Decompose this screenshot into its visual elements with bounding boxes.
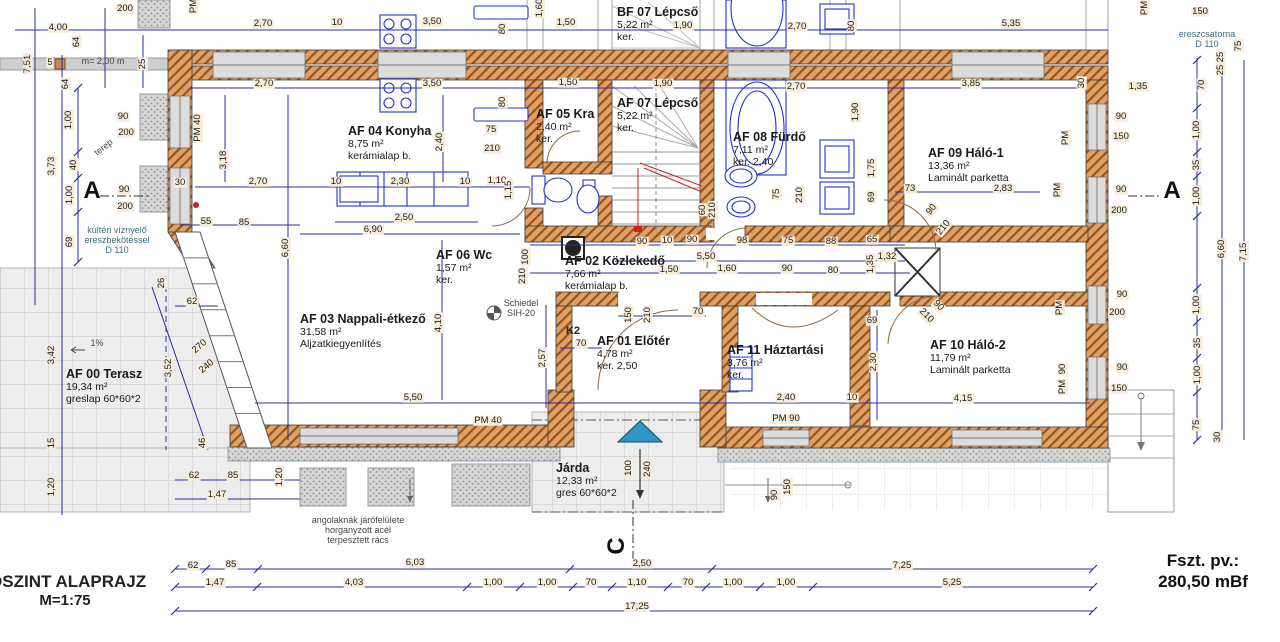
- dimension-label: 6,60: [281, 238, 291, 259]
- room-ar: 4,78 m²: [597, 348, 670, 360]
- dimension-label: 2,50: [394, 213, 415, 223]
- room-nm: BF 07 Lépcső: [617, 5, 698, 19]
- note-label: m= 2,00 m: [82, 57, 125, 67]
- room-label: AF 01 Előtér4,78 m²ker. 2,50: [597, 334, 670, 372]
- room-ar: 7,66 m²: [565, 268, 665, 280]
- dimension-label: 10: [661, 236, 674, 246]
- dimension-label: 1,75: [867, 158, 877, 179]
- dimension-label: 1,50: [558, 78, 579, 88]
- dimension-label: 1,60: [535, 0, 545, 18]
- dimension-label: 98: [736, 236, 749, 246]
- dimension-label: 1,00: [537, 578, 558, 588]
- dimension-label: 70: [692, 307, 705, 317]
- dimension-label: 1,00: [65, 185, 75, 206]
- section-marker: A: [1163, 178, 1180, 204]
- room-label: AF 02 Közlekedő7,66 m²kerámialap b.: [565, 254, 665, 292]
- dimension-label: 2,57: [538, 348, 548, 369]
- room-nm: AF 03 Nappali-étkező: [300, 312, 426, 326]
- room-nm: AF 10 Háló-2: [930, 338, 1011, 352]
- dimension-label: 10: [331, 18, 344, 28]
- dimension-label: 7,25: [892, 561, 913, 571]
- dimension-label: PM: [1058, 379, 1068, 395]
- room-label: Járda12,33 m²gres 60*60*2: [556, 461, 617, 499]
- dimension-label: 210: [518, 267, 528, 285]
- room-fi: kerámialap b.: [565, 280, 665, 292]
- dimension-label: 70: [575, 339, 588, 349]
- note-label: 1%: [90, 339, 103, 349]
- dimension-label: 17,25: [624, 602, 650, 612]
- room-ar: 13,36 m²: [928, 160, 1009, 172]
- dimension-label: 200: [116, 4, 134, 14]
- room-ar: 3,76 m²: [727, 357, 824, 369]
- dimension-label: 90: [686, 235, 699, 245]
- room-ar: 12,33 m²: [556, 475, 617, 487]
- dimension-label: 200: [1108, 308, 1126, 318]
- room-fi: greslap 60*60*2: [66, 393, 142, 405]
- dimension-label: 64: [61, 78, 71, 91]
- dimension-label: 1,00: [776, 578, 797, 588]
- dimension-label: 1,47: [205, 578, 226, 588]
- dimension-label: 150: [624, 306, 634, 324]
- dimension-label: 1,35: [1128, 82, 1149, 92]
- dimension-label: 3,85: [961, 79, 982, 89]
- dimension-label: 35: [1192, 159, 1202, 172]
- dimension-label: 1,50: [556, 18, 577, 28]
- dimension-label: 10: [330, 177, 343, 187]
- drawing-scale: M=1:75: [0, 592, 140, 609]
- dimension-label: 5,50: [696, 252, 717, 262]
- dimension-label: 6,03: [405, 558, 426, 568]
- dimension-label: 30: [1077, 77, 1087, 90]
- dimension-label: 4,15: [953, 394, 974, 404]
- dimension-label: 15: [47, 437, 57, 450]
- dimension-label: 5,25: [942, 578, 963, 588]
- room-fi: kerámialap b.: [348, 150, 431, 162]
- dimension-label: 1,00: [1192, 295, 1202, 316]
- title-block: DSZINT ALAPRAJZ M=1:75: [0, 572, 146, 609]
- room-nm: AF 08 Fürdő: [733, 130, 806, 144]
- dimension-label: 90: [636, 237, 649, 247]
- dimension-label: PM 40: [473, 416, 502, 426]
- dimension-label: 1,20: [47, 477, 57, 498]
- dimension-label: 62: [186, 297, 199, 307]
- dimension-label: 1,00: [1193, 365, 1203, 386]
- dimension-label: 2,30: [390, 177, 411, 187]
- dimension-label: 150: [783, 478, 793, 496]
- dimension-label: 65: [866, 235, 879, 245]
- dimension-label: PM: [1055, 300, 1065, 316]
- dimension-label: 75: [1234, 40, 1244, 53]
- room-nm: AF 09 Háló-1: [928, 146, 1009, 160]
- dimension-label: 1,35: [866, 254, 876, 275]
- dimension-label: 1,20: [275, 467, 285, 488]
- dimension-label: PM 90: [771, 414, 800, 424]
- washbasin-icon: [725, 165, 757, 187]
- dimension-label: 5,50: [403, 393, 424, 403]
- dimension-label: 2,70: [253, 19, 274, 29]
- room-label: AF 10 Háló-211,79 m²Laminált parketta: [930, 338, 1011, 376]
- dimension-label: 69: [867, 191, 877, 204]
- room-fi: Aljzatkiegyenlítés: [300, 338, 426, 350]
- dimension-label: 70: [1197, 79, 1207, 92]
- room-ar: 11,79 m²: [930, 352, 1011, 364]
- room-ar: 31,58 m²: [300, 326, 426, 338]
- dimension-label: 1,15: [504, 180, 514, 201]
- room-label: AF 08 Fürdő7,11 m²ker. 2,40: [733, 130, 806, 168]
- dimension-label: 1,32: [877, 252, 898, 262]
- dimension-label: 210: [795, 186, 805, 204]
- room-nm: AF 04 Konyha: [348, 124, 431, 138]
- dimension-label: 88: [825, 237, 838, 247]
- dimension-label: 26: [157, 277, 167, 290]
- room-nm: AF 02 Közlekedő: [565, 254, 665, 268]
- dimension-label: 75: [782, 236, 795, 246]
- corner-shaft: [895, 248, 940, 296]
- dimension-label: 90: [1116, 290, 1129, 300]
- room-label: AF 00 Terasz19,34 m²greslap 60*60*2: [66, 367, 142, 405]
- dimension-label: 2,30: [869, 352, 879, 373]
- dimension-label: 3,52: [164, 358, 174, 379]
- dimension-label: 90: [1115, 185, 1128, 195]
- dimension-label: 200: [117, 128, 135, 138]
- room-label: AF 06 Wc1,57 m²ker.: [436, 248, 492, 286]
- dimension-label: 90: [1058, 363, 1068, 376]
- dimension-label: 2,70: [254, 79, 275, 89]
- room-label: AF 05 Kra2,40 m²ker.: [536, 107, 594, 145]
- dimension-label: PM: [1061, 130, 1071, 146]
- worktop-icon: [474, 108, 528, 121]
- dimension-label: 69: [65, 236, 75, 249]
- dimension-label: 210: [643, 306, 653, 324]
- dimension-label: 40: [69, 159, 79, 172]
- dimension-label: K2: [566, 325, 580, 337]
- dimension-label: 5,35: [1001, 19, 1022, 29]
- note-label: angolaknák járófelülete horganyzott acél…: [312, 516, 405, 546]
- dimension-label: 73: [904, 184, 917, 194]
- level-label: Fszt. pv.:: [1128, 550, 1278, 571]
- dimension-label: 3,18: [219, 150, 229, 171]
- dimension-label: 75: [1192, 419, 1202, 432]
- room-ar: 5,22 m²: [617, 110, 698, 122]
- dimension-label: 75: [772, 188, 782, 201]
- dimension-label: 85: [238, 218, 251, 228]
- dimension-label: 2,40: [435, 132, 445, 153]
- dimension-label: 80: [847, 20, 857, 33]
- dimension-label: 35: [1193, 337, 1203, 350]
- dimension-label: 2,83: [993, 184, 1014, 194]
- dimension-label: 4,10: [434, 313, 444, 334]
- dimension-label: 200: [116, 202, 134, 212]
- dimension-label: 80: [498, 23, 508, 36]
- side-stair: [1108, 390, 1174, 512]
- floor-plan-page: BF 07 Lépcső5,22 m²ker.AF 04 Konyha8,75 …: [0, 0, 1280, 642]
- room-ar: 7,11 m²: [733, 144, 806, 156]
- dimension-label: 6,60: [1217, 239, 1227, 260]
- room-ar: 19,34 m²: [66, 381, 142, 393]
- room-fi: ker.: [536, 133, 594, 145]
- dimension-label: 85: [225, 560, 238, 570]
- dimension-label: 1,00: [1192, 120, 1202, 141]
- room-label: AF 03 Nappali-étkező31,58 m²Aljzatkiegye…: [300, 312, 426, 350]
- dimension-label: 25: [1216, 51, 1226, 64]
- dimension-label: 30: [1213, 431, 1223, 444]
- dimension-label: 55: [200, 217, 213, 227]
- room-label: AF 11 Háztartási3,76 m²ker.: [727, 343, 824, 381]
- dimension-label: 46: [198, 437, 208, 450]
- toilet-icon: [532, 176, 755, 217]
- dimension-label: 1,10: [627, 578, 648, 588]
- dimension-label: 1,50: [659, 265, 680, 275]
- dimension-label: 90: [117, 112, 130, 122]
- worktop-icon: [474, 6, 528, 19]
- dimension-label: 150: [1110, 384, 1128, 394]
- dimension-label: 3,73: [47, 156, 57, 177]
- dimension-label: 2,70: [787, 22, 808, 32]
- dimension-label: 10: [459, 177, 472, 187]
- dimension-label: 2,70: [786, 82, 807, 92]
- dimension-label: 100: [624, 459, 634, 477]
- dimension-label: 6,90: [363, 225, 384, 235]
- room-fi: ker.: [617, 31, 698, 43]
- room-nm: AF 07 Lépcső: [617, 96, 698, 110]
- dimension-label: 240: [643, 460, 653, 478]
- dimension-label: 70: [682, 578, 695, 588]
- dimension-label: 80: [827, 266, 840, 276]
- room-nm: AF 05 Kra: [536, 107, 594, 121]
- drawing-title: DSZINT ALAPRAJZ: [0, 572, 146, 592]
- dimension-label: 200: [1110, 206, 1128, 216]
- dimension-label: 3,50: [422, 17, 443, 27]
- level-value: 280,50 mBf: [1128, 571, 1278, 592]
- room-label: AF 04 Konyha8,75 m²kerámialap b.: [348, 124, 431, 162]
- dimension-label: 10: [846, 393, 859, 403]
- room-nm: Járda: [556, 461, 617, 475]
- room-fi: ker. 2,40: [733, 156, 806, 168]
- dimension-label: PM: [1140, 0, 1150, 16]
- level-block: Fszt. pv.: 280,50 mBf: [1128, 550, 1278, 593]
- dimension-label: 3,42: [47, 345, 57, 366]
- dimension-label: 150: [1191, 7, 1209, 17]
- room-label: AF 07 Lépcső5,22 m²ker.: [617, 96, 698, 134]
- dimension-label: 90: [781, 264, 794, 274]
- room-fi: ker.: [727, 369, 824, 381]
- room-fi: ker. 2,50: [597, 360, 670, 372]
- room-fi: Laminált parketta: [930, 364, 1011, 376]
- room-nm: AF 06 Wc: [436, 248, 492, 262]
- dimension-label: 69: [866, 316, 879, 326]
- dimension-label: 2,40: [776, 393, 797, 403]
- dimension-label: 80: [498, 96, 508, 109]
- dimension-label: 90: [118, 185, 131, 195]
- dimension-label: 1,90: [851, 102, 861, 123]
- dimension-label: PM: [189, 0, 199, 14]
- dimension-label: 70: [585, 578, 598, 588]
- dimension-label: 90: [1116, 363, 1129, 373]
- section-marker: C: [604, 537, 630, 554]
- note-label: kültéri víznyelő ereszbekötéssel D 110: [84, 226, 149, 256]
- dimension-label: 62: [188, 471, 201, 481]
- room-nm: AF 01 Előtér: [597, 334, 670, 348]
- room-ar: 8,75 m²: [348, 138, 431, 150]
- dimension-label: 3,50: [422, 79, 443, 89]
- room-nm: AF 11 Háztartási: [727, 343, 824, 357]
- dimension-label: 1,90: [673, 21, 694, 31]
- room-label: AF 09 Háló-113,36 m²Laminált parketta: [928, 146, 1009, 184]
- dimension-label: 4,03: [344, 578, 365, 588]
- room-ar: 2,40 m²: [536, 121, 594, 133]
- note-label: Schiedel SIH-20: [504, 299, 539, 319]
- room-ar: 1,57 m²: [436, 262, 492, 274]
- note-label: ereszcsatorna D 110: [1179, 30, 1236, 50]
- dimension-label: 1,00: [483, 578, 504, 588]
- dimension-label: 62: [187, 561, 200, 571]
- dimension-label: 1,00: [723, 578, 744, 588]
- dimension-label: 210: [483, 144, 501, 154]
- room-fi: ker.: [436, 274, 492, 286]
- dimension-label: 75: [485, 125, 498, 135]
- dimension-label: 7,51: [23, 54, 33, 75]
- dimension-label: 90: [770, 489, 780, 502]
- dimension-label: PM 40: [193, 113, 203, 142]
- dimension-label: 64: [72, 36, 82, 49]
- dimension-label: 1,60: [717, 264, 738, 274]
- dimension-label: 4,00: [48, 23, 69, 33]
- dimension-label: 7,15: [1239, 242, 1249, 263]
- dimension-label: 1,00: [1192, 186, 1202, 207]
- dimension-label: 150: [1112, 132, 1130, 142]
- dimension-label: 2,70: [248, 177, 269, 187]
- section-marker: A: [83, 178, 100, 204]
- dimension-label: 1,90: [653, 79, 674, 89]
- dimension-label: 25: [138, 58, 148, 71]
- dimension-label: PM: [1053, 182, 1063, 198]
- dimension-label: 1,47: [207, 490, 228, 500]
- dimension-label: 1,00: [64, 110, 74, 131]
- dimension-label: 30: [174, 178, 187, 188]
- room-fi: ker.: [617, 122, 698, 134]
- dimension-label: 100: [521, 248, 531, 266]
- red-marker: [193, 202, 199, 208]
- dimension-label: 210: [708, 201, 718, 219]
- dimension-label: 25: [1216, 64, 1226, 77]
- dimension-label: 2,50: [632, 559, 653, 569]
- dimension-label: 5: [46, 58, 53, 68]
- room-nm: AF 00 Terasz: [66, 367, 142, 381]
- dimension-label: 85: [227, 471, 240, 481]
- dimension-label: 90: [1115, 112, 1128, 122]
- room-fi: gres 60*60*2: [556, 487, 617, 499]
